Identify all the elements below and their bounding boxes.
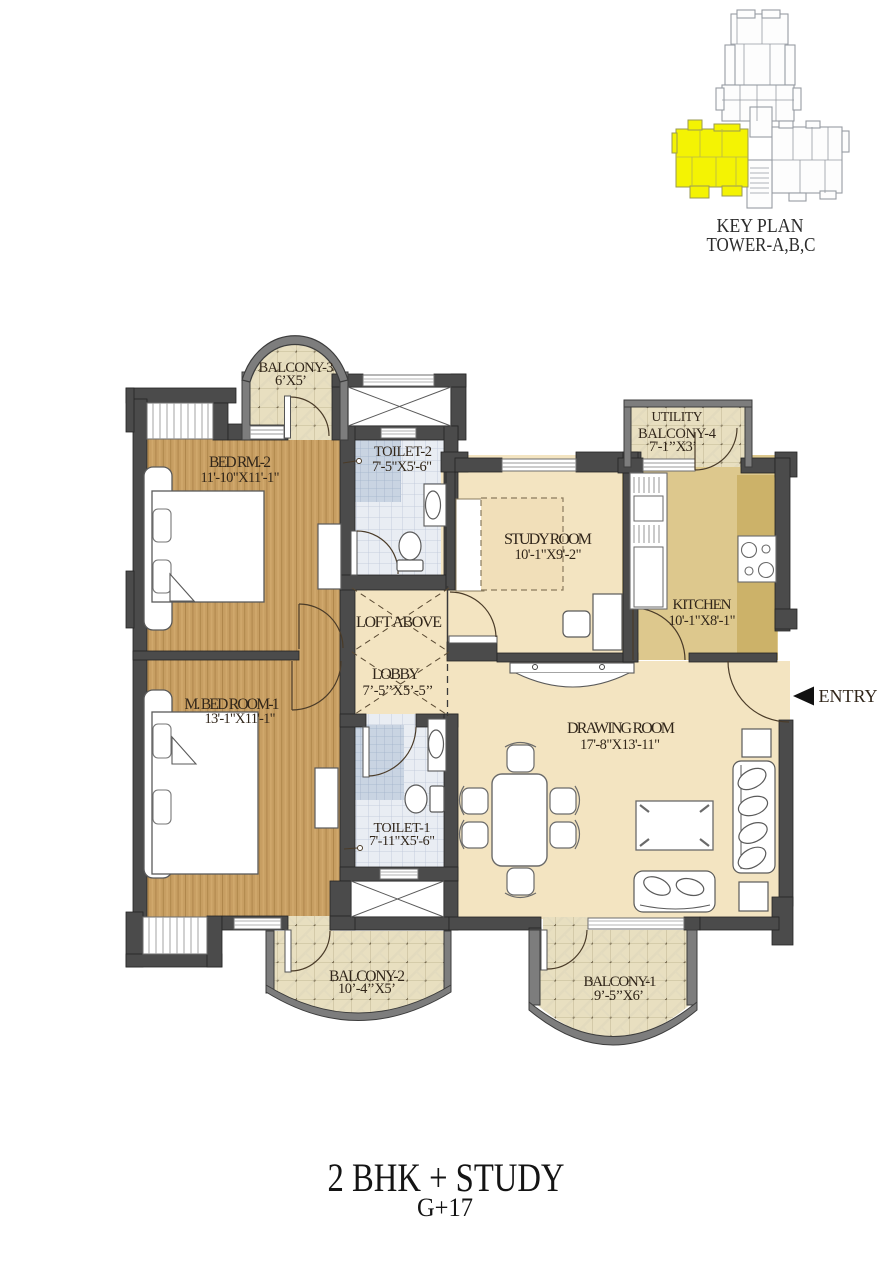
svg-text:7'-5"X5'-6": 7'-5"X5'-6" <box>372 459 432 475</box>
svg-text:UTILITY: UTILITY <box>652 409 703 424</box>
svg-text:STUDY ROOM: STUDY ROOM <box>504 531 592 548</box>
svg-text:ENTRY: ENTRY <box>819 686 878 706</box>
svg-text:LOBBY: LOBBY <box>372 666 420 683</box>
svg-text:11'-10"X11'-1": 11'-10"X11'-1" <box>201 470 280 486</box>
svg-text:13'-1"X11'-1": 13'-1"X11'-1" <box>205 711 276 727</box>
svg-text:10’-4’’X5’: 10’-4’’X5’ <box>338 981 396 997</box>
svg-text:6’X5’: 6’X5’ <box>275 373 307 389</box>
svg-text:G+17: G+17 <box>417 1193 473 1222</box>
svg-text:9’-5’’X6’: 9’-5’’X6’ <box>594 988 644 1004</box>
svg-text:7'-11"X5'-6": 7'-11"X5'-6" <box>369 834 435 849</box>
svg-text:DRAWING ROOM: DRAWING ROOM <box>567 720 675 737</box>
svg-text:7'-1’’X3’: 7'-1’’X3’ <box>649 439 697 455</box>
svg-text:10'-1"X8'-1": 10'-1"X8'-1" <box>669 613 736 629</box>
svg-text:KITCHEN: KITCHEN <box>673 597 732 613</box>
svg-text:TOWER-A,B,C: TOWER-A,B,C <box>707 234 816 256</box>
svg-text:7’-5’’X5’-5’’: 7’-5’’X5’-5’’ <box>363 683 434 699</box>
svg-text:10'-1"X9'-2": 10'-1"X9'-2" <box>515 547 582 563</box>
svg-text:BED RM.-2: BED RM.-2 <box>209 454 271 471</box>
svg-text:LOFT ABOVE: LOFT ABOVE <box>356 614 442 631</box>
svg-text:17'-8"X13'-11": 17'-8"X13'-11" <box>580 737 660 753</box>
svg-text:TOILET-2: TOILET-2 <box>374 444 432 460</box>
